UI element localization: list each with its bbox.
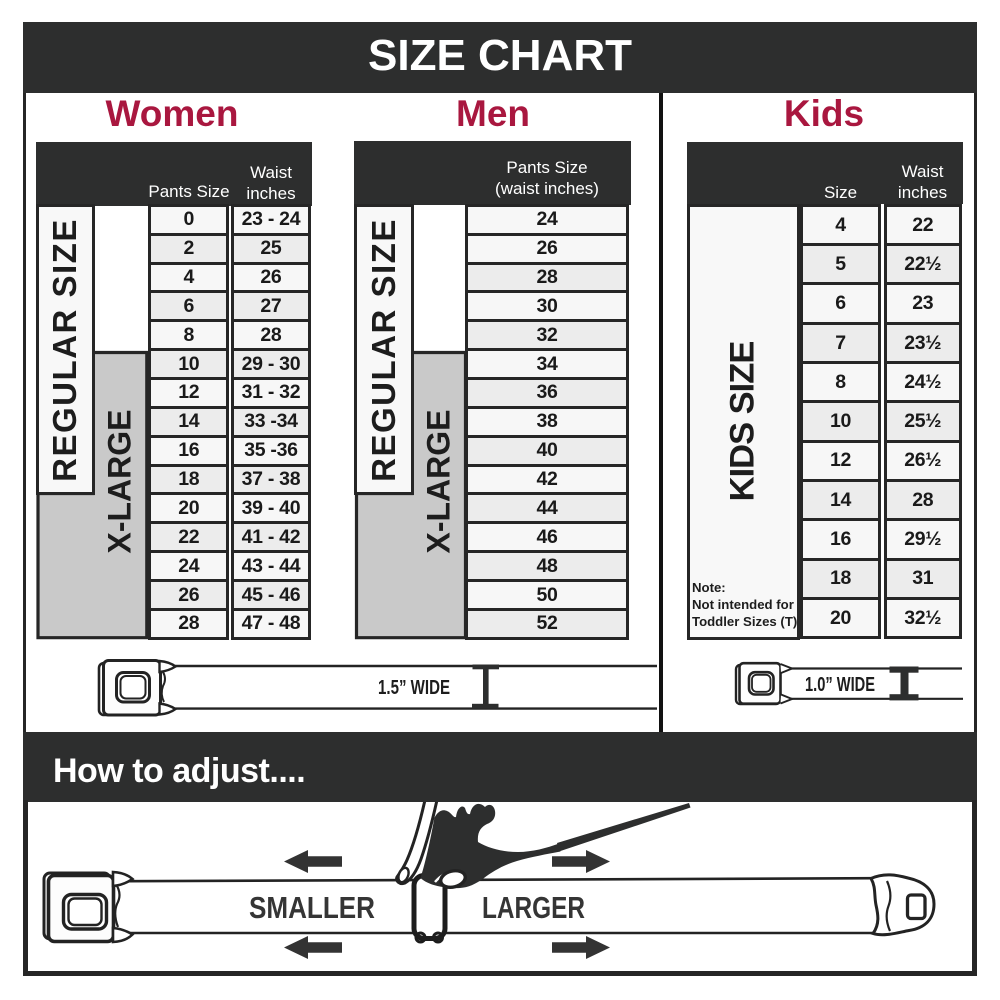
svg-text:1.5” WIDE: 1.5” WIDE [378,676,450,699]
svg-text:SMALLER: SMALLER [249,890,375,925]
svg-text:1.0” WIDE: 1.0” WIDE [805,674,875,696]
svg-text:LARGER: LARGER [482,890,585,925]
